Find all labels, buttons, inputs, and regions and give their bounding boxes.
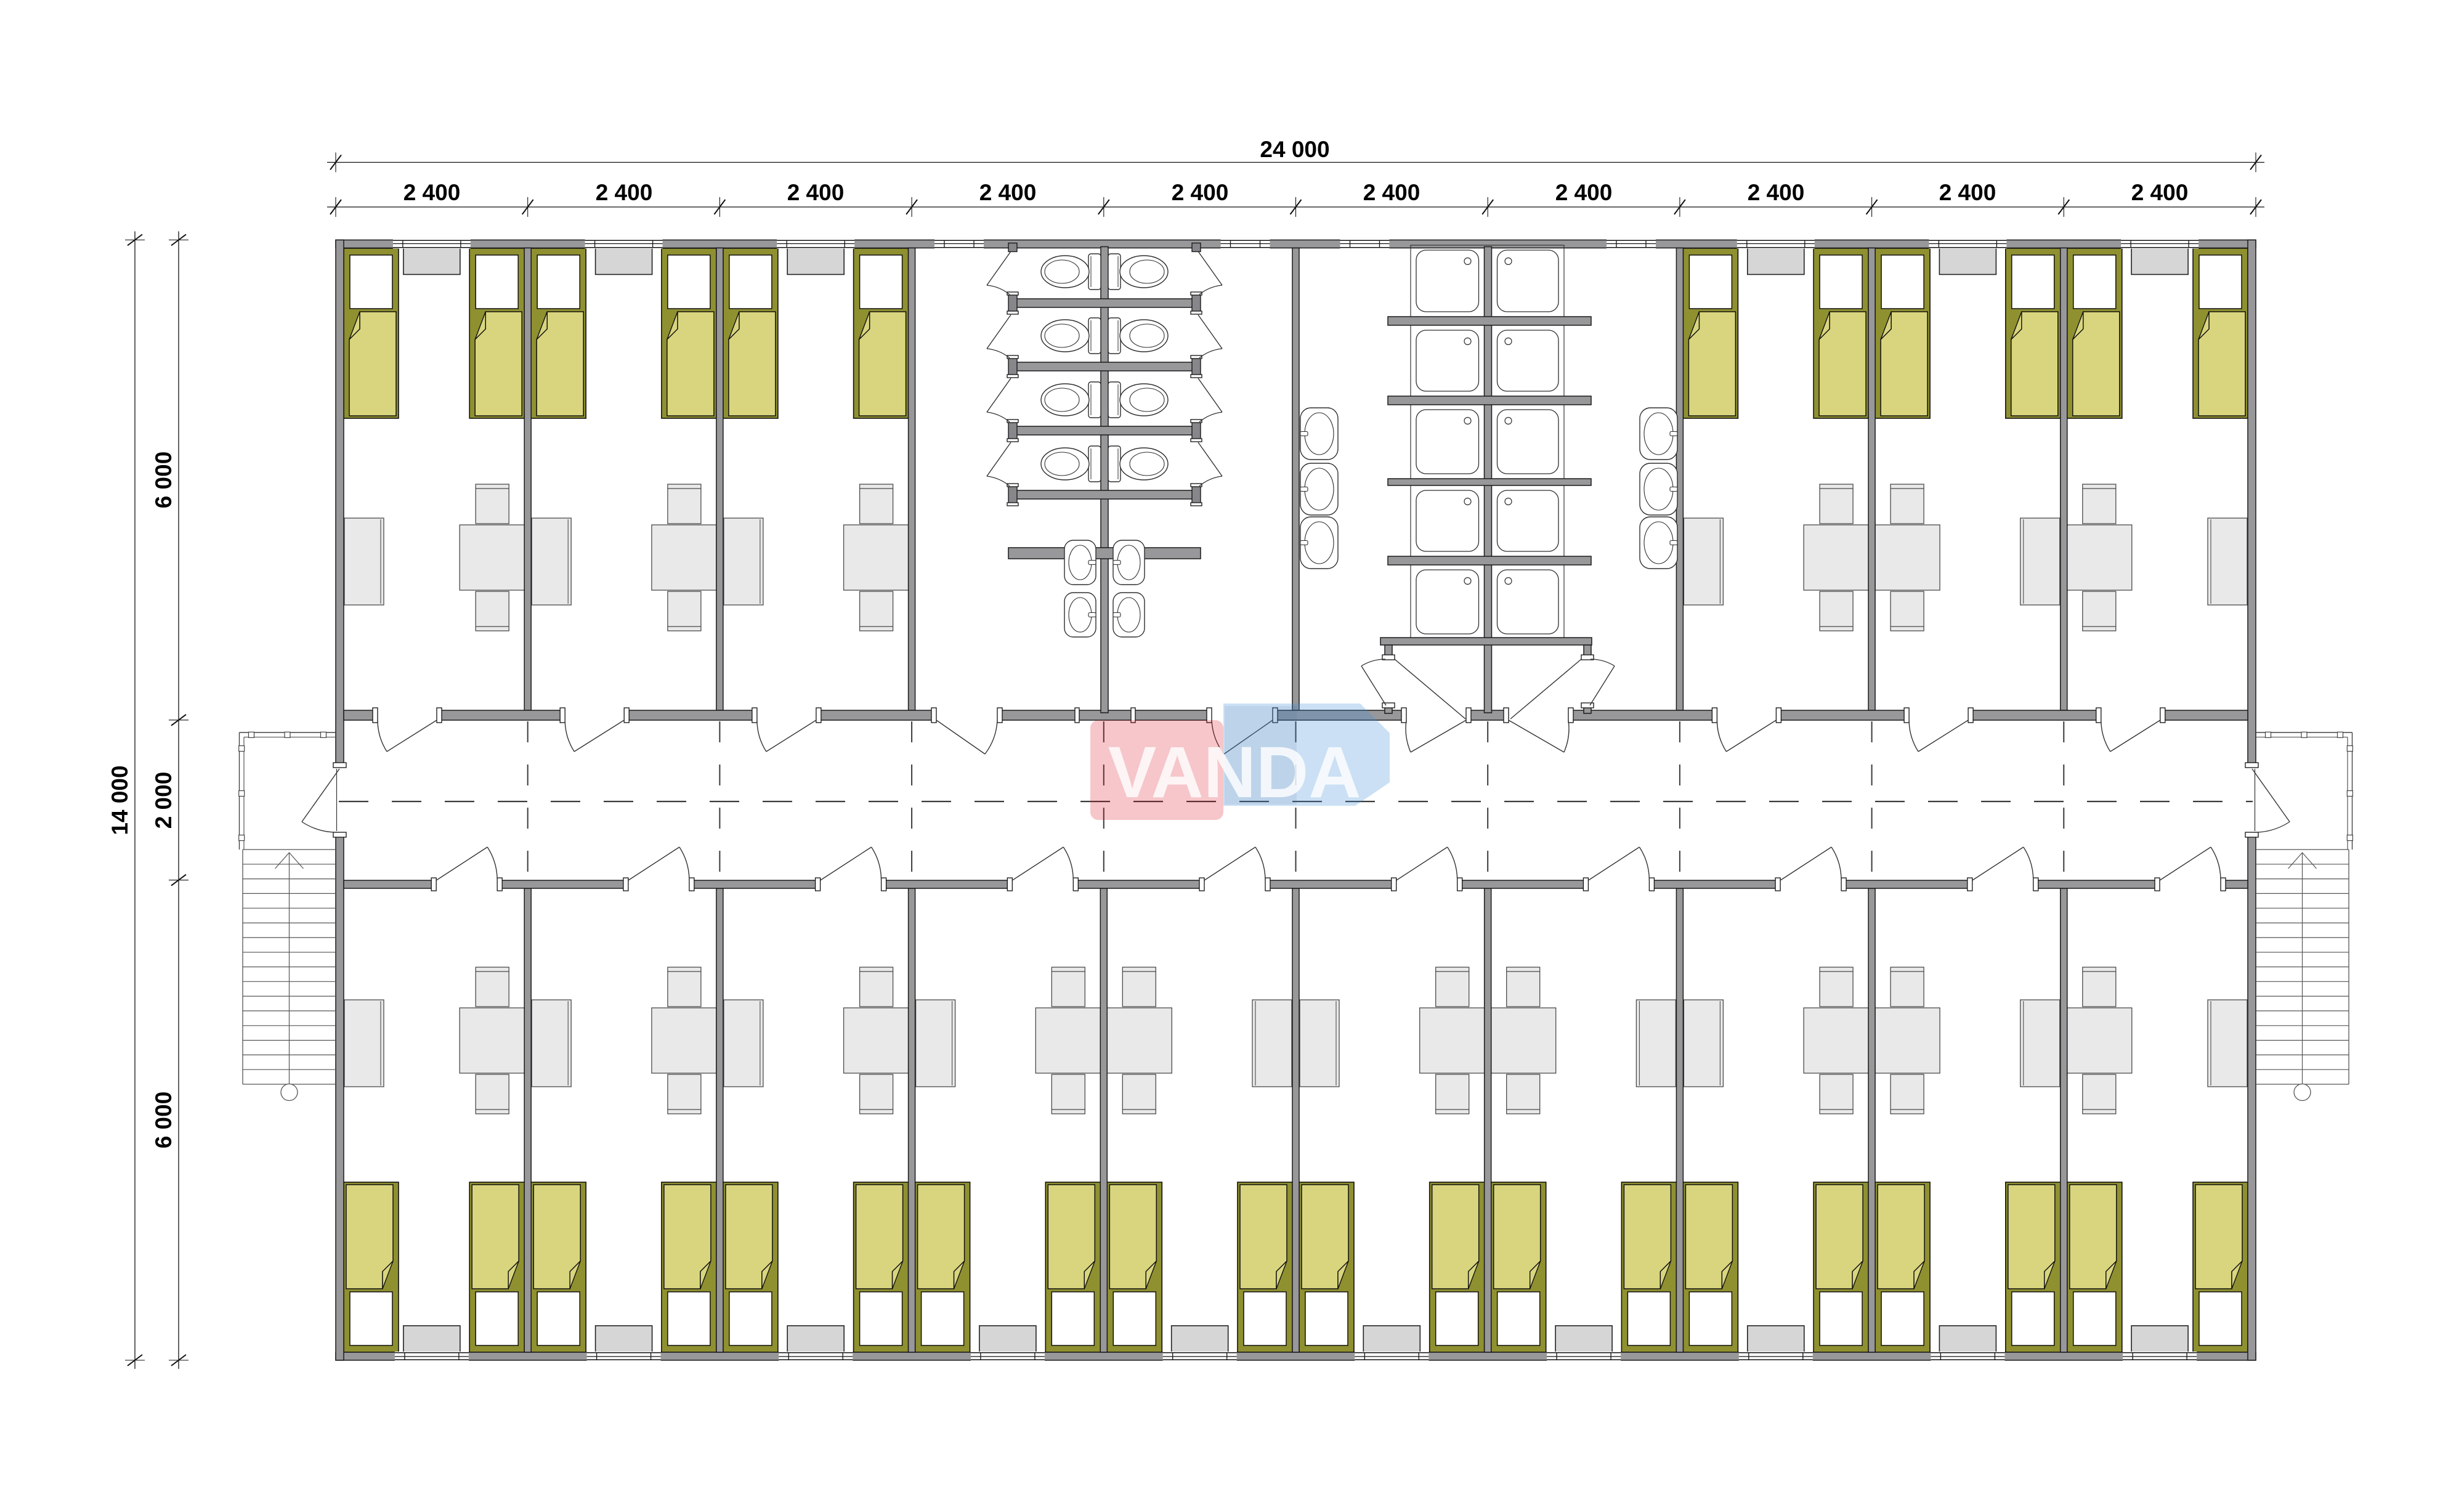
svg-text:6 000: 6 000 [151,1092,176,1149]
svg-text:14 000: 14 000 [107,765,132,835]
svg-text:2 400: 2 400 [1172,180,1229,205]
svg-text:2 400: 2 400 [596,180,653,205]
svg-text:2 400: 2 400 [979,180,1037,205]
svg-text:6 000: 6 000 [151,452,176,509]
svg-text:VANDA: VANDA [1108,732,1361,813]
svg-text:2 400: 2 400 [1363,180,1420,205]
svg-text:2 400: 2 400 [1939,180,1996,205]
svg-text:24 000: 24 000 [1260,137,1329,162]
svg-text:2 400: 2 400 [1748,180,1805,205]
svg-text:2 400: 2 400 [787,180,845,205]
svg-text:2 000: 2 000 [151,772,176,829]
svg-text:2 400: 2 400 [403,180,461,205]
svg-text:2 400: 2 400 [1555,180,1613,205]
svg-text:2 400: 2 400 [2131,180,2189,205]
